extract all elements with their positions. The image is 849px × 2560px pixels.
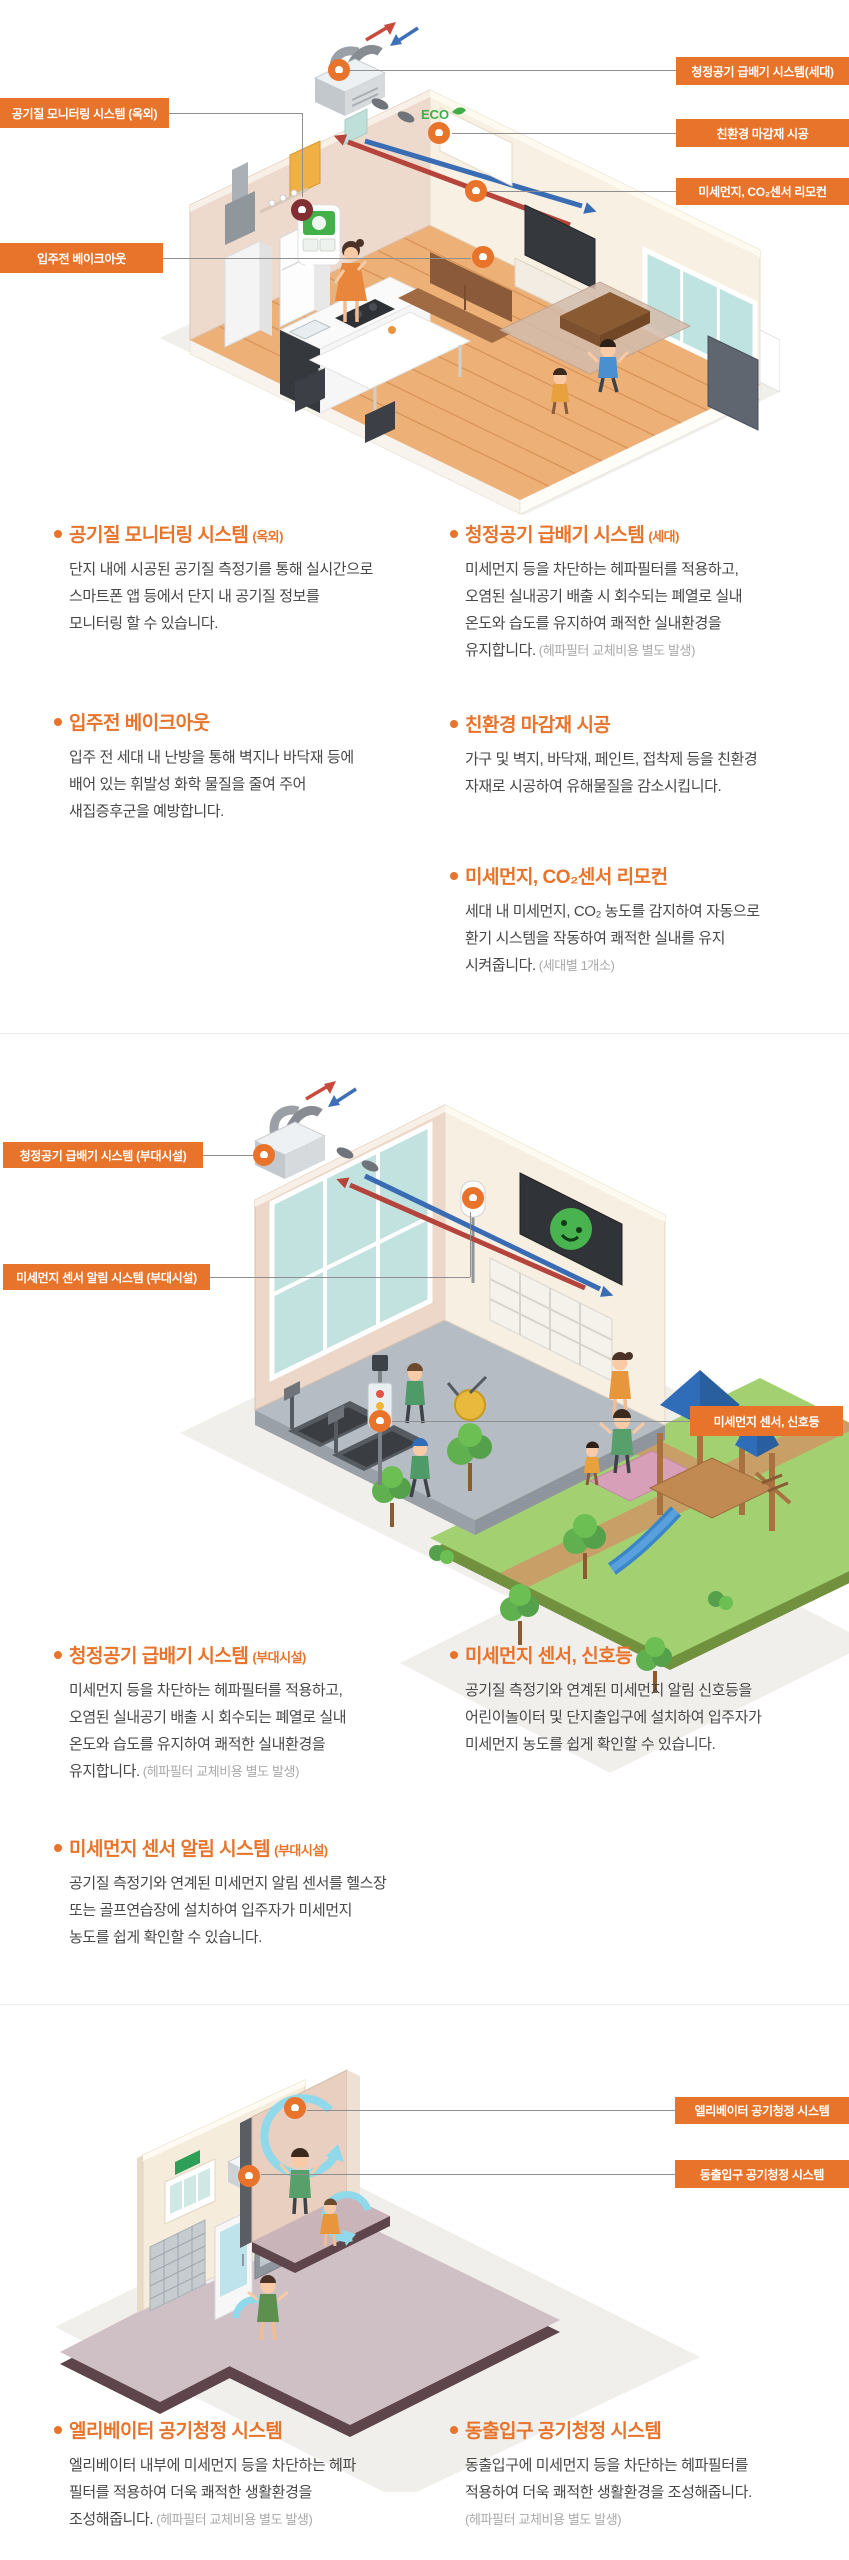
connector-amenity-supply — [203, 1155, 253, 1156]
feature-line: 필터를 적용하여 더욱 쾌적한 생활환경을 — [69, 2479, 444, 2506]
feature-title: 엘리베이터 공기청정 시스템 — [69, 2416, 282, 2443]
feature-finish: 친환경 마감재 시공 가구 및 벽지, 바닥재, 페인트, 접착제 등을 친환경… — [450, 710, 840, 800]
bullet-icon — [54, 530, 62, 538]
infographic-page: ECO — [0, 0, 849, 2560]
feature-suffix: (세대) — [648, 526, 679, 545]
feature-line: 농도를 쉽게 확인할 수 있습니다. — [69, 1924, 444, 1951]
feature-title: 입주전 베이크아웃 — [69, 708, 210, 735]
feature-title: 공기질 모니터링 시스템 — [69, 520, 248, 547]
section-divider — [0, 2004, 849, 2005]
feature-note: (헤파필터 교체비용 별도 발생) — [539, 643, 695, 658]
connector-bakeout — [163, 258, 471, 259]
callout-amenity-alarm: 미세먼지 센서 알림 시스템 (부대시설) — [3, 1264, 210, 1290]
feature-note: (헤파필터 교체비용 별도 발생) — [465, 2512, 621, 2527]
eco-badge: ECO — [421, 107, 449, 122]
callout-remote: 미세먼지, CO₂센서 리모컨 — [676, 178, 849, 205]
feature-entrance: 동출입구 공기청정 시스템 동출입구에 미세먼지 등을 차단하는 헤파필터를 적… — [450, 2416, 840, 2533]
feature-line: 동출입구에 미세먼지 등을 차단하는 헤파필터를 — [465, 2452, 840, 2479]
connector-supply — [350, 70, 676, 71]
feature-line: 유지합니다.(헤파필터 교체비용 별도 발생) — [465, 637, 840, 664]
feature-line: 오염된 실내공기 배출 시 회수되는 폐열로 실내 — [465, 583, 840, 610]
exhaust-intake-arrows — [306, 1081, 356, 1107]
feature-line: 어린이놀이터 및 단지출입구에 설치하여 입주자가 — [465, 1704, 840, 1731]
callout-elevator: 엘리베이터 공기청정 시스템 — [675, 2097, 849, 2124]
feature-line: 적용하여 더욱 쾌적한 생활환경을 조성해줍니다. — [465, 2479, 840, 2506]
feature-line: 시켜줍니다.(세대별 1개소) — [465, 952, 840, 979]
connector-entrance — [261, 2174, 675, 2175]
amenity-illustration — [0, 1033, 849, 1933]
feature-amenity-alarm: 미세먼지 센서 알림 시스템(부대시설) 공기질 측정기와 연계된 미세먼지 알… — [54, 1834, 444, 1951]
callout-bakeout: 입주전 베이크아웃 — [0, 243, 163, 273]
feature-elevator: 엘리베이터 공기청정 시스템 엘리베이터 내부에 미세먼지 등을 차단하는 헤파… — [54, 2416, 444, 2533]
feature-title: 청정공기 급배기 시스템 — [69, 1641, 248, 1668]
connector-monitoring — [169, 113, 302, 114]
feature-line: 미세먼지 농도를 쉽게 확인할 수 있습니다. — [465, 1731, 840, 1758]
feature-line: 온도와 습도를 유지하여 쾌적한 실내환경을 — [69, 1731, 444, 1758]
pin-amenity-supply-icon — [253, 1144, 275, 1166]
ventilation-unit — [315, 49, 385, 116]
feature-line: 오염된 실내공기 배출 시 회수되는 폐열로 실내 — [69, 1704, 444, 1731]
feature-title: 친환경 마감재 시공 — [465, 710, 610, 737]
feature-line: 미세먼지 등을 차단하는 헤파필터를 적용하고, — [465, 556, 840, 583]
feature-suffix: (옥외) — [252, 526, 283, 545]
feature-title: 미세먼지 센서 알림 시스템 — [69, 1834, 270, 1861]
feature-line: (헤파필터 교체비용 별도 발생) — [465, 2506, 840, 2533]
callout-entrance: 동출입구 공기청정 시스템 — [675, 2160, 849, 2188]
feature-line: 유지합니다.(헤파필터 교체비용 별도 발생) — [69, 1758, 444, 1785]
pin-amenity-signal-icon — [369, 1410, 391, 1432]
feature-note: (세대별 1개소) — [539, 958, 615, 973]
pin-entrance-icon — [238, 2165, 260, 2187]
callout-monitoring: 공기질 모니터링 시스템 (옥외) — [0, 98, 169, 128]
feature-bakeout: 입주전 베이크아웃 입주 전 세대 내 난방을 통해 벽지나 바닥재 등에 배어… — [54, 708, 444, 825]
connector-elevator — [307, 2110, 675, 2111]
connector-amenity-signal — [392, 1421, 690, 1422]
pin-monitoring-icon — [291, 199, 313, 221]
feature-line: 가구 및 벽지, 바닥재, 페인트, 접착제 등을 친환경 — [465, 746, 840, 773]
feature-title: 미세먼지 센서, 신호등 — [465, 1641, 632, 1668]
feature-line: 단지 내에 시공된 공기질 측정기를 통해 실시간으로 — [69, 556, 444, 583]
callout-amenity-signal: 미세먼지 센서, 신호등 — [690, 1406, 843, 1436]
feature-line: 스마트폰 앱 등에서 단지 내 공기질 정보를 — [69, 583, 444, 610]
connector-monitoring-drop — [302, 113, 303, 197]
connector-amenity-alarm-rise — [470, 1212, 471, 1277]
bullet-icon — [54, 2426, 62, 2434]
feature-monitoring: 공기질 모니터링 시스템(옥외) 단지 내에 시공된 공기질 측정기를 통해 실… — [54, 520, 444, 637]
exhaust-intake-arrows — [366, 22, 418, 46]
feature-line: 환기 시스템을 작동하여 쾌적한 실내를 유지 — [465, 925, 840, 952]
bullet-icon — [450, 530, 458, 538]
feature-suffix: (부대시설) — [252, 1647, 306, 1666]
feature-title: 동출입구 공기청정 시스템 — [465, 2416, 661, 2443]
feature-line: 새집증후군을 예방합니다. — [69, 798, 444, 825]
feature-line: 모니터링 할 수 있습니다. — [69, 610, 444, 637]
bullet-icon — [450, 2426, 458, 2434]
feature-line: 공기질 측정기와 연계된 미세먼지 알림 센서를 헬스장 — [69, 1870, 444, 1897]
feature-line: 온도와 습도를 유지하여 쾌적한 실내환경을 — [465, 610, 840, 637]
bullet-icon — [54, 1844, 62, 1852]
feature-remote: 미세먼지, CO₂센서 리모컨 세대 내 미세먼지, CO₂ 농도를 감지하여 … — [450, 862, 840, 979]
balcony-rail — [760, 330, 780, 392]
connector-remote — [489, 191, 676, 192]
feature-note: (헤파필터 교체비용 별도 발생) — [143, 1764, 299, 1779]
bullet-icon — [450, 872, 458, 880]
feature-line: 또는 골프연습장에 설치하여 입주자가 미세먼지 — [69, 1897, 444, 1924]
feature-note: (헤파필터 교체비용 별도 발생) — [156, 2512, 312, 2527]
feature-supply: 청정공기 급배기 시스템(세대) 미세먼지 등을 차단하는 헤파필터를 적용하고… — [450, 520, 840, 664]
callout-finish: 친환경 마감재 시공 — [676, 119, 849, 147]
bullet-icon — [54, 1651, 62, 1659]
feature-line: 공기질 측정기와 연계된 미세먼지 알림 신호등을 — [465, 1677, 840, 1704]
pin-supply-icon — [328, 59, 350, 81]
pin-remote-icon — [465, 180, 487, 202]
feature-line: 세대 내 미세먼지, CO₂ 농도를 감지하여 자동으로 — [465, 898, 840, 925]
connector-amenity-alarm — [210, 1277, 470, 1278]
connector-finish — [452, 133, 676, 134]
bullet-icon — [450, 1651, 458, 1659]
feature-line: 조성해줍니다.(헤파필터 교체비용 별도 발생) — [69, 2506, 444, 2533]
pin-elevator-icon — [284, 2097, 306, 2119]
feature-line: 자재로 시공하여 유해물질을 감소시킵니다. — [465, 773, 840, 800]
bullet-icon — [54, 718, 62, 726]
callout-supply: 청정공기 급배기 시스템(세대) — [676, 57, 849, 85]
callout-amenity-supply: 청정공기 급배기 시스템 (부대시설) — [3, 1142, 203, 1168]
feature-line: 엘리베이터 내부에 미세먼지 등을 차단하는 헤파 — [69, 2452, 444, 2479]
bullet-icon — [450, 720, 458, 728]
feature-title: 청정공기 급배기 시스템 — [465, 520, 644, 547]
feature-amenity-signal: 미세먼지 센서, 신호등 공기질 측정기와 연계된 미세먼지 알림 신호등을 어… — [450, 1641, 840, 1758]
feature-line: 미세먼지 등을 차단하는 헤파필터를 적용하고, — [69, 1677, 444, 1704]
feature-line: 배어 있는 휘발성 화학 물질을 줄여 주어 — [69, 771, 444, 798]
pin-finish-icon — [428, 122, 450, 144]
feature-line: 입주 전 세대 내 난방을 통해 벽지나 바닥재 등에 — [69, 744, 444, 771]
pin-amenity-alarm-icon — [462, 1187, 484, 1209]
pin-bakeout-icon — [472, 246, 494, 268]
feature-title: 미세먼지, CO₂센서 리모컨 — [465, 862, 668, 889]
feature-amenity-supply: 청정공기 급배기 시스템(부대시설) 미세먼지 등을 차단하는 헤파필터를 적용… — [54, 1641, 444, 1785]
feature-suffix: (부대시설) — [274, 1840, 328, 1859]
